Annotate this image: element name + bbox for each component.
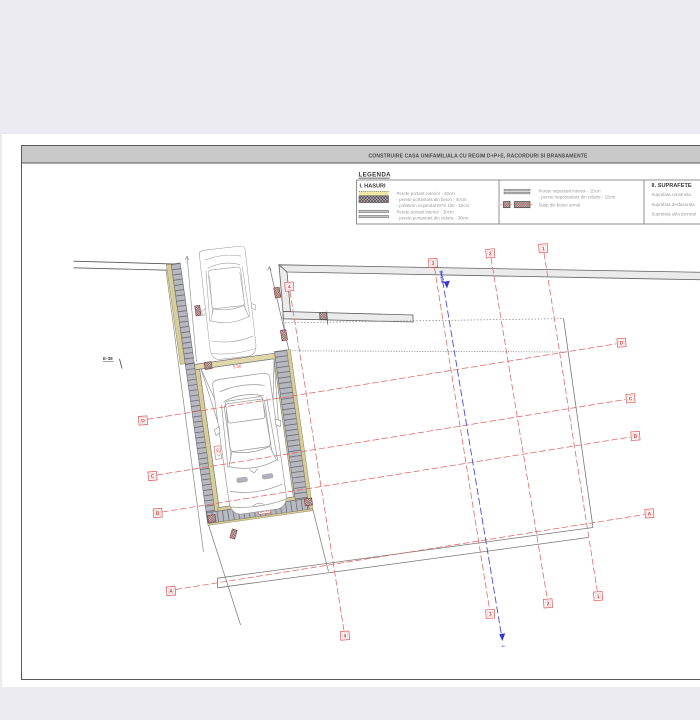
svg-text:- perete portantant din zidari: - perete portantant din zidarie - 30cm [397, 216, 469, 221]
svg-text:II. SUPRAFETE: II. SUPRAFETE [652, 183, 692, 189]
svg-text:CONSTRUIRE CASA UNIFAMILIALA C: CONSTRUIRE CASA UNIFAMILIALA CU REGIM D+… [369, 153, 588, 159]
svg-text:- perete portantant din beton: - perete portantant din beton - 40cm [397, 197, 467, 202]
svg-text:aa: aa [501, 644, 505, 648]
svg-text:- polistiren expandat EPS 100: - polistiren expandat EPS 100 - 10cm [397, 203, 470, 208]
svg-text:- perete neportantant din zida: - perete neportantant din zidarie - 15cm [539, 195, 616, 200]
svg-text:Perete portant interior - 30cm: Perete portant interior - 30cm [397, 210, 454, 215]
svg-text:Suprafata utila demisol: Suprafata utila demisol [652, 212, 697, 217]
svg-text:E-38: E-38 [103, 356, 113, 361]
svg-text:Suprafata construita: Suprafata construita [652, 192, 692, 197]
svg-text:I. HASURI: I. HASURI [360, 184, 387, 190]
svg-text:Stalp din beton armat: Stalp din beton armat [539, 203, 582, 208]
svg-text:LEGENDA: LEGENDA [359, 172, 392, 179]
svg-text:Perete neportant interior - 15: Perete neportant interior - 15cm [539, 189, 601, 194]
svg-text:Perete portant exterior - 40cm: Perete portant exterior - 40cm [397, 191, 456, 196]
svg-text:Suprafata desfasurata: Suprafata desfasurata [652, 202, 696, 207]
